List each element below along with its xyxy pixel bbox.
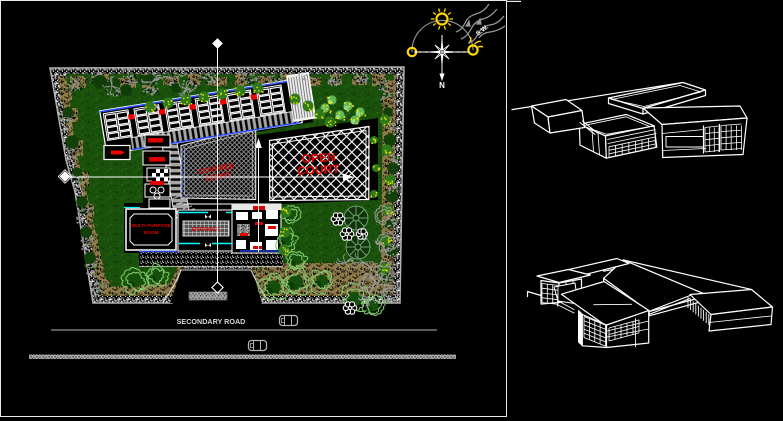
svg-text:MULTI-PURPOSE: MULTI-PURPOSE (131, 223, 171, 229)
svg-text:COURT: COURT (297, 162, 341, 178)
svg-text:N: N (439, 81, 445, 90)
svg-text:ROOM: ROOM (144, 230, 159, 236)
svg-text:ENTRANCE: ENTRANCE (192, 227, 221, 233)
svg-text:SECONDARY ROAD: SECONDARY ROAD (177, 317, 246, 326)
